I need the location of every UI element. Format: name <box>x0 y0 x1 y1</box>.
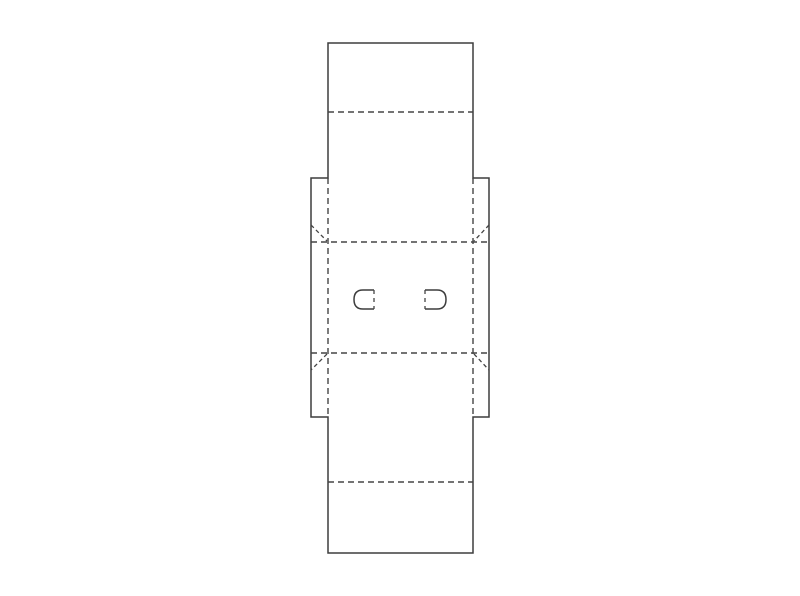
left-slot-cut <box>354 290 374 309</box>
cut-outline <box>311 43 489 553</box>
right-slot-cut <box>425 290 446 309</box>
fold-line-gusset-bottom-right <box>474 354 489 370</box>
dieline-svg <box>0 0 800 596</box>
fold-line-gusset-top-left <box>311 225 327 241</box>
fold-line-gusset-bottom-left <box>311 354 327 370</box>
dieline-page <box>0 0 800 596</box>
fold-line-gusset-top-right <box>474 225 489 241</box>
